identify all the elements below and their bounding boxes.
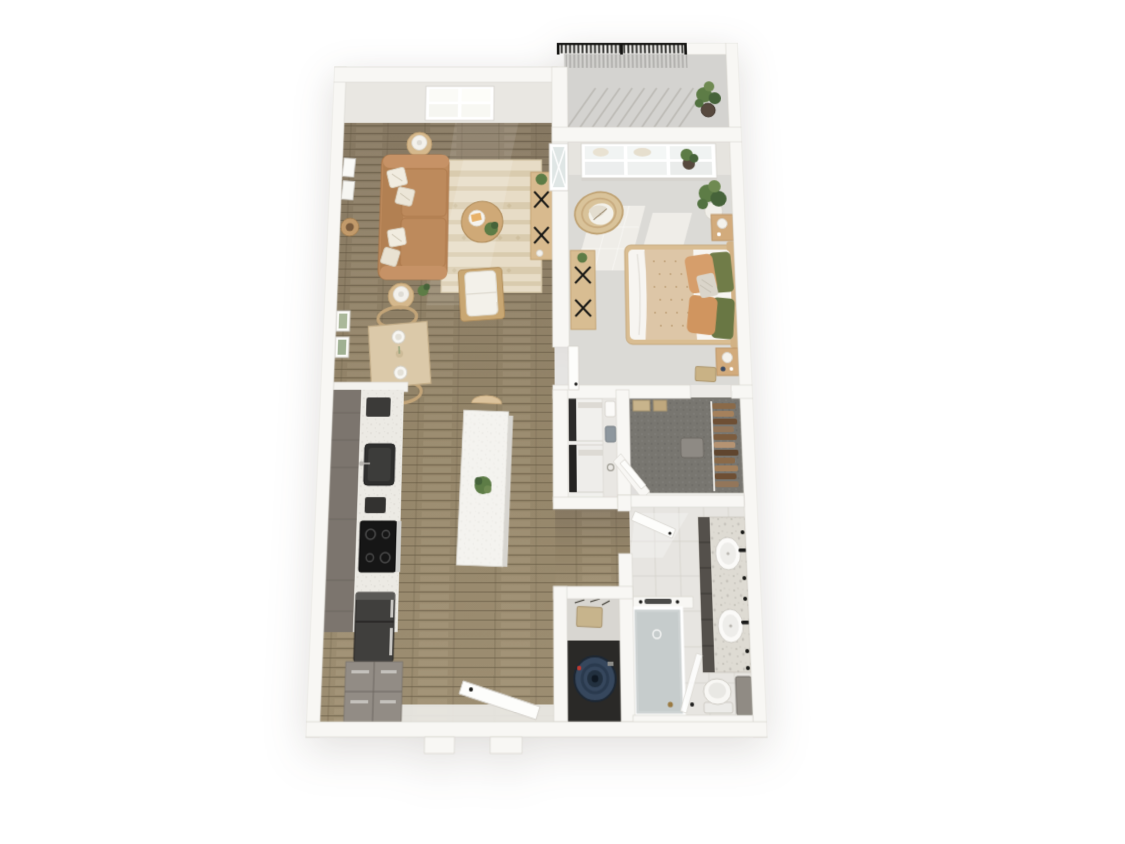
living-window	[425, 86, 494, 120]
nightstand-top	[711, 215, 734, 241]
coffee-maker	[365, 497, 386, 513]
bench-box	[695, 366, 716, 381]
detergent-box	[605, 401, 615, 416]
corner-cabinet-block	[344, 662, 403, 722]
wall-bathroom-top	[618, 495, 745, 507]
side-table-top	[407, 132, 432, 156]
wall-laundry-right	[616, 390, 631, 502]
detergent-box	[605, 426, 616, 442]
sofa-arm	[383, 155, 449, 168]
ottoman	[681, 438, 704, 458]
sofa-arm	[380, 266, 448, 280]
valve-red	[577, 666, 581, 671]
bedroom-door-open	[568, 346, 579, 390]
closet-vestibule-floor	[688, 385, 731, 398]
refrigerator	[354, 593, 395, 662]
floorplan-svg	[304, 43, 769, 770]
floorplan-image: { "meta": { "title": "3D top-down floor …	[0, 0, 1125, 844]
towel-on-wall	[644, 599, 671, 604]
bedroom-window	[581, 144, 717, 181]
kitchen-island	[456, 395, 513, 567]
wall-bathroom-left-upper	[618, 495, 632, 511]
media-console-bedroom	[570, 250, 595, 329]
lamp	[722, 352, 733, 362]
door-handle	[574, 382, 577, 385]
laundry-closet	[569, 396, 620, 502]
wall-bathroom-left	[619, 554, 636, 722]
threshold-tab	[490, 737, 522, 753]
nightstand-bottom	[716, 348, 739, 375]
lounge-chair	[458, 267, 505, 321]
storage-box	[633, 400, 650, 411]
cooktop-range	[359, 521, 402, 572]
double-vanity	[698, 517, 752, 672]
bed	[624, 241, 740, 348]
water-heater	[574, 656, 616, 701]
toilet	[703, 679, 733, 713]
wall-laundry-left	[553, 390, 569, 502]
wall-top-living	[334, 67, 557, 82]
sofa	[378, 155, 449, 280]
floorplan-stage	[304, 43, 769, 770]
storage-box	[653, 400, 666, 411]
countertop-appliance	[366, 397, 391, 416]
balcony-railing	[557, 43, 687, 55]
wall-utility-left	[553, 586, 567, 721]
lamp	[717, 219, 727, 229]
wall-balcony-bedroom	[552, 127, 742, 142]
electrical-box	[577, 607, 603, 628]
balcony-glass-door	[549, 144, 568, 191]
threshold-tab	[424, 737, 454, 753]
wall-divider	[552, 67, 569, 347]
plant	[536, 174, 548, 185]
bath-cabinet	[736, 677, 753, 716]
wall-bottom	[305, 722, 767, 737]
wall-bedroom-bottom-right	[731, 385, 753, 398]
coffee-table	[461, 201, 503, 242]
